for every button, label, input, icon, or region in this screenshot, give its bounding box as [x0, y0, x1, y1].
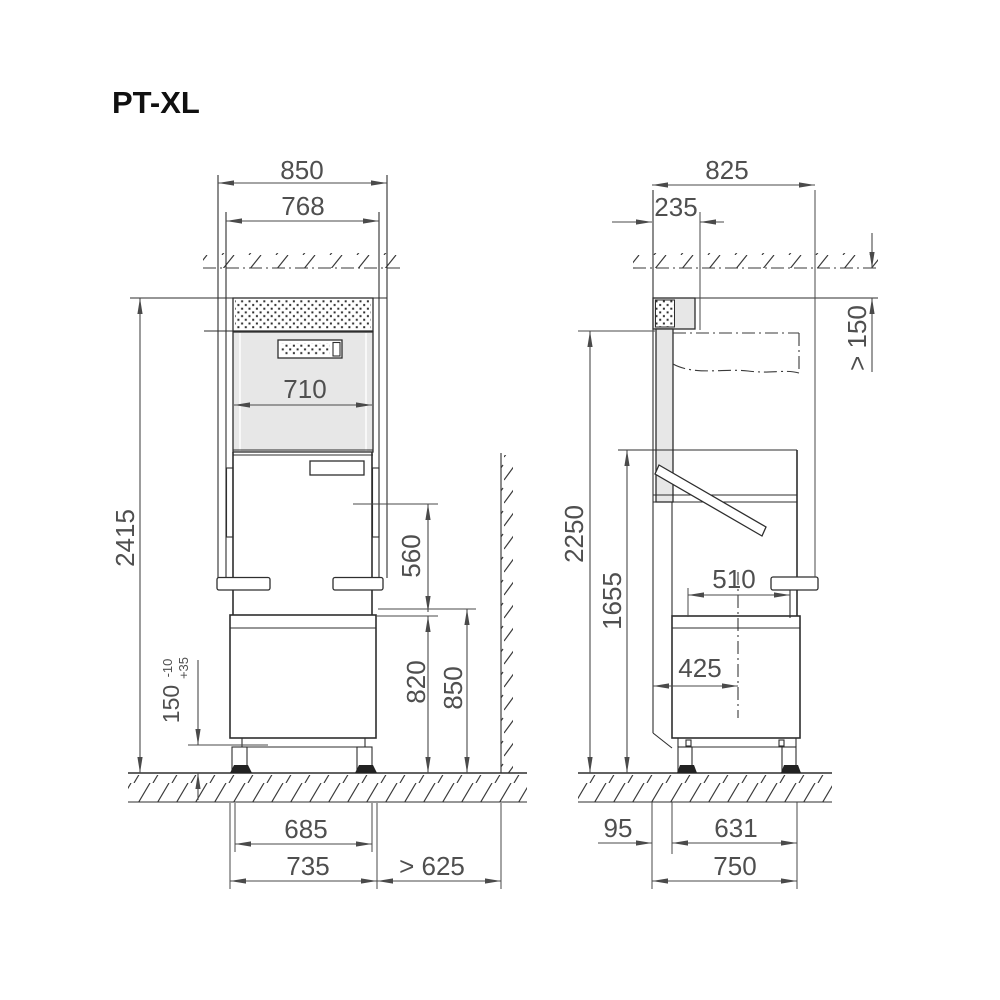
dim-label-gt625: > 625: [399, 851, 465, 881]
foot-left: [230, 765, 252, 773]
dim-label-2250: 2250: [559, 505, 589, 563]
dim-label-710: 710: [283, 374, 326, 404]
control-panel: [278, 340, 342, 358]
rack-rail-left: [217, 578, 270, 591]
dim-label-150-tol-minus: -10: [160, 659, 175, 678]
dim-label-2415: 2415: [110, 509, 140, 567]
ceiling-side: [633, 253, 878, 268]
foot-right: [355, 765, 377, 773]
ceiling-front: [203, 253, 400, 268]
floor-front: [128, 773, 527, 802]
drawing-title: PT-XL: [112, 85, 200, 120]
door-handle: [310, 461, 364, 475]
dim-feet-depth: 631: [672, 813, 797, 843]
foot-rear: [781, 765, 801, 773]
dim-label-1655: 1655: [597, 572, 627, 630]
dim-base-depth: 750: [652, 851, 797, 881]
dim-width-inner: 768: [226, 191, 379, 221]
dim-label-150-tol-plus: +35: [176, 657, 191, 679]
dim-label-425: 425: [678, 653, 721, 683]
dim-label-95: 95: [604, 813, 633, 843]
dim-label-150: 150: [158, 685, 184, 723]
rack-rail-side: [771, 577, 818, 590]
hood-raised-phantom: [673, 333, 799, 373]
dim-label-631: 631: [714, 813, 757, 843]
dim-side-clearance: > 625: [377, 803, 501, 889]
dim-label-850-width: 850: [280, 155, 323, 185]
rack-rail-right: [333, 578, 383, 591]
dim-duct-depth: 235: [612, 192, 724, 222]
dim-label-685: 685: [284, 814, 327, 844]
dim-label-750: 750: [713, 851, 756, 881]
technical-drawing-page: PT-XL: [0, 0, 1000, 1000]
dim-pass-height: 560: [353, 504, 438, 612]
wall-section: [501, 453, 513, 773]
dim-label-850-height: 850: [438, 666, 468, 709]
base-cabinet-front: [230, 615, 377, 773]
foot-front: [677, 765, 697, 773]
dim-label-gt150: > 150: [842, 305, 872, 371]
dim-base-height: 820: [376, 616, 438, 773]
dim-feet-span: 685: [235, 803, 372, 852]
dim-hood-height: 1655: [597, 450, 627, 773]
dim-label-510: 510: [712, 564, 755, 594]
dim-depth-total: 825: [652, 155, 815, 185]
dim-width-total: 850: [218, 155, 387, 185]
dimension-drawing: PT-XL: [0, 0, 1000, 1000]
floor-side: [578, 773, 832, 802]
dim-label-820: 820: [401, 660, 431, 703]
front-view: 850 768 710 2415 150 +35 -10: [110, 155, 527, 889]
dim-label-735: 735: [286, 851, 329, 881]
dim-height-total: 2415: [110, 298, 140, 773]
dim-front-offset: 95: [598, 802, 797, 889]
dim-open-height: 2250: [559, 331, 590, 773]
base-cabinet-side: [672, 616, 801, 773]
dim-label-768: 768: [281, 191, 324, 221]
dim-label-825: 825: [705, 155, 748, 185]
dim-rack-center: 425: [653, 653, 738, 686]
dim-label-235: 235: [654, 192, 697, 222]
side-view: 825 235 > 150 2250 1655: [559, 155, 878, 889]
dim-label-560: 560: [396, 534, 426, 577]
